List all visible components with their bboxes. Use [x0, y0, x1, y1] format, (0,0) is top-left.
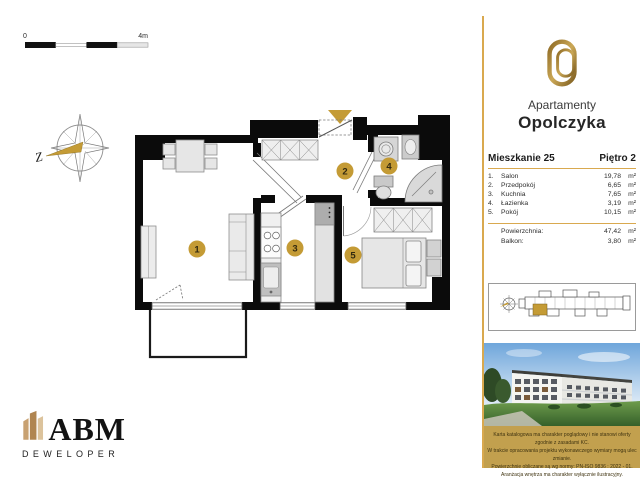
building-photo: [484, 343, 640, 426]
compass-west-arrow: [46, 142, 83, 156]
balcony-door-swing: [156, 285, 183, 300]
entrance-door-leaf: [319, 120, 352, 137]
cloud: [506, 349, 542, 357]
room-badge-2: 2: [342, 166, 347, 177]
room-name: Salon: [501, 172, 604, 181]
bush: [548, 405, 560, 410]
total-value: 3,80: [608, 237, 621, 247]
room-num: 4.: [488, 199, 501, 208]
brand-block: Apartamenty Opolczyka: [484, 38, 640, 133]
unit-number: Mieszkanie 25: [488, 153, 555, 164]
room-num: 1.: [488, 172, 501, 181]
pillow: [406, 241, 421, 262]
bedside-cabinet: [427, 259, 441, 276]
compass-rose: Z: [34, 114, 109, 182]
compass-west-label: Z: [34, 149, 45, 165]
room-list-row: 3. Kuchnia 7,65 m²: [488, 190, 636, 199]
site-plan-box: [488, 283, 636, 331]
balcony-area-row: Balkon: 3,80 m²: [488, 237, 636, 247]
dining-table: [176, 140, 204, 172]
highlighted-unit: [533, 304, 547, 315]
site-compass-icon: [500, 295, 518, 313]
gold-rule: [488, 168, 636, 169]
site-plan-drawing: [489, 284, 633, 328]
total-unit: m²: [621, 237, 636, 247]
scale-start-label: 0: [23, 33, 27, 40]
total-unit: m²: [621, 227, 636, 237]
bathroom-door-leaf: [353, 152, 376, 193]
chair: [205, 158, 217, 169]
disclaimer-line: Powierzchnie obliczane są wg normy: PN-I…: [484, 463, 640, 471]
scale-end-label: 4m: [138, 33, 148, 40]
disclaimer-line: Aranżacja wnętrza ma charakter wyłącznie…: [484, 471, 640, 479]
room-name: Pokój: [501, 208, 604, 217]
developer-name: ABM: [48, 412, 126, 446]
total-value: 47,42: [604, 227, 621, 237]
fridge-icon: [315, 203, 334, 225]
chair: [163, 158, 175, 169]
room-area: 6,65: [608, 181, 621, 190]
room-unit: m²: [621, 190, 636, 199]
room-area: 3,19: [608, 199, 621, 208]
cloud: [578, 352, 630, 362]
balcony-outline: [150, 310, 246, 357]
tree: [495, 379, 511, 403]
bedroom-furniture: [362, 208, 441, 288]
room-unit: m²: [621, 199, 636, 208]
room-area: 10,15: [604, 208, 621, 217]
scale-seg-4: [117, 43, 148, 47]
room-list-row: 4. Łazienka 3,19 m²: [488, 199, 636, 208]
room-num: 3.: [488, 190, 501, 199]
scale-seg-2: [56, 43, 87, 46]
entrance-door: [319, 120, 351, 135]
stove-icon: [261, 227, 281, 258]
bedside-cabinet: [427, 240, 441, 257]
room-badge-1: 1: [194, 244, 200, 255]
room-name: Kuchnia: [501, 190, 608, 199]
chair: [205, 144, 217, 155]
salon-furniture: [141, 140, 254, 280]
brand-line2: Opolczyka: [484, 113, 640, 133]
salon-door-leaf: [253, 153, 301, 203]
scale-seg-1: [25, 42, 56, 48]
developer-logo-icon: [22, 402, 44, 446]
room-badge-5: 5: [350, 250, 356, 261]
total-label: Powierzchnia:: [501, 227, 604, 237]
brand-monogram-icon: [540, 38, 584, 88]
disclaimer-line: W trakcie opracowania projektu wykonawcz…: [484, 447, 640, 463]
developer-logo: ABM DEWELOPER: [22, 402, 126, 459]
gold-rule: [488, 223, 636, 224]
bush: [577, 403, 591, 408]
sofa: [229, 214, 254, 280]
building-footprint: [519, 290, 630, 316]
toilet-icon: [374, 176, 393, 187]
scale-seg-3: [87, 42, 118, 48]
room-unit: m²: [621, 181, 636, 190]
total-label: Balkon:: [501, 237, 608, 247]
room-area: 19,78: [604, 172, 621, 181]
unit-card: Mieszkanie 25 Piętro 2 1. Salon 19,78 m²…: [488, 153, 636, 247]
scale-bar: 0 4m: [23, 33, 148, 48]
pillow: [406, 265, 421, 286]
room-badge-3: 3: [292, 243, 297, 254]
bedroom-door-arc: [344, 207, 372, 236]
brand-line1: Apartamenty: [484, 98, 640, 112]
bush: [610, 403, 622, 407]
disclaimer-band: Karta katalogowa ma charakter poglądowy …: [484, 426, 640, 468]
developer-subtitle: DEWELOPER: [22, 449, 126, 459]
room-unit: m²: [621, 172, 636, 181]
room-unit: m²: [621, 208, 636, 217]
hall-wardrobe: [262, 140, 318, 160]
room-num: 5.: [488, 208, 501, 217]
total-area-row: Powierzchnia: 47,42 m²: [488, 227, 636, 237]
room-badge-4: 4: [386, 161, 392, 172]
shower-icon: [405, 165, 442, 202]
room-list-row: 5. Pokój 10,15 m²: [488, 208, 636, 217]
room-name: Łazienka: [501, 199, 608, 208]
room-num: 2.: [488, 181, 501, 190]
room-list-row: 1. Salon 19,78 m²: [488, 172, 636, 181]
room-list-row: 2. Przedpokój 6,65 m²: [488, 181, 636, 190]
chair: [163, 144, 175, 155]
unit-floor: Piętro 2: [599, 153, 636, 164]
room-area: 7,65: [608, 190, 621, 199]
room-name: Przedpokój: [501, 181, 608, 190]
disclaimer-line: Karta katalogowa ma charakter poglądowy …: [484, 431, 640, 447]
